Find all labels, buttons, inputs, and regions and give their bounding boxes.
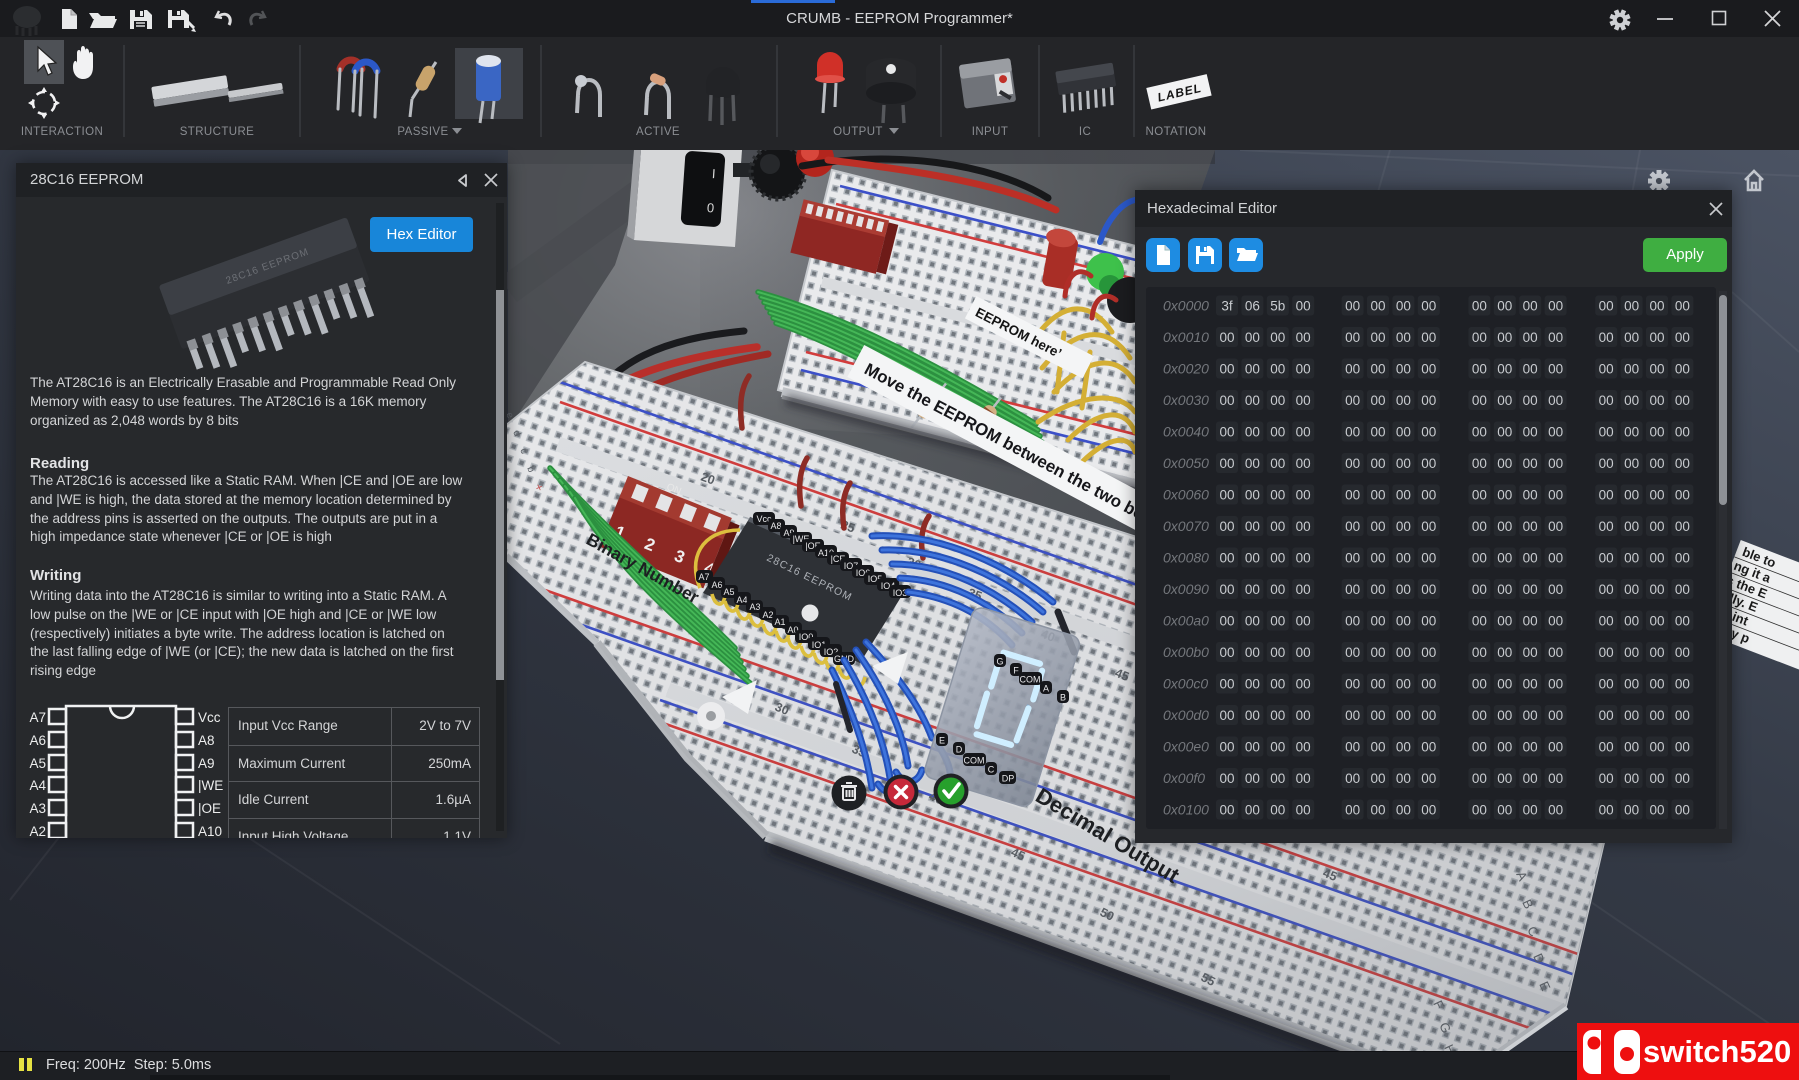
svg-text:00: 00 (1270, 613, 1285, 628)
svg-text:00: 00 (1270, 550, 1285, 565)
svg-text:00: 00 (1649, 456, 1664, 471)
svg-text:00: 00 (1345, 771, 1360, 786)
svg-text:00: 00 (1270, 424, 1285, 439)
svg-text:00: 00 (1345, 802, 1360, 817)
svg-text:00: 00 (1296, 739, 1311, 754)
svg-text:00: 00 (1396, 519, 1411, 534)
svg-text:00: 00 (1270, 519, 1285, 534)
svg-text:00: 00 (1649, 424, 1664, 439)
svg-text:00: 00 (1599, 424, 1614, 439)
svg-text:00: 00 (1675, 582, 1690, 597)
svg-text:00: 00 (1270, 676, 1285, 691)
svg-text:00: 00 (1370, 456, 1385, 471)
svg-text:00: 00 (1624, 613, 1639, 628)
svg-text:0x00c0: 0x00c0 (1163, 676, 1208, 692)
svg-text:00: 00 (1599, 582, 1614, 597)
svg-text:00: 00 (1548, 676, 1563, 691)
svg-text:00: 00 (1497, 393, 1512, 408)
svg-text:00: 00 (1599, 645, 1614, 660)
svg-text:00: 00 (1497, 550, 1512, 565)
svg-text:00: 00 (1421, 361, 1436, 376)
svg-text:00: 00 (1396, 676, 1411, 691)
svg-text:00: 00 (1421, 487, 1436, 502)
svg-text:00: 00 (1370, 613, 1385, 628)
svg-text:00: 00 (1649, 361, 1664, 376)
svg-text:00: 00 (1523, 424, 1538, 439)
svg-text:00: 00 (1396, 739, 1411, 754)
svg-text:00: 00 (1472, 424, 1487, 439)
svg-text:0x0080: 0x0080 (1163, 550, 1209, 566)
svg-text:INPUT: INPUT (972, 126, 1009, 138)
svg-text:00: 00 (1472, 361, 1487, 376)
svg-text:00: 00 (1345, 676, 1360, 691)
svg-text:00: 00 (1523, 676, 1538, 691)
svg-text:00: 00 (1345, 739, 1360, 754)
svg-text:00: 00 (1649, 613, 1664, 628)
svg-text:00: 00 (1245, 550, 1260, 565)
svg-text:0x0060: 0x0060 (1163, 487, 1209, 503)
svg-text:00: 00 (1675, 550, 1690, 565)
svg-text:0x0020: 0x0020 (1163, 361, 1209, 377)
svg-text:A7: A7 (29, 710, 46, 725)
svg-text:00: 00 (1296, 582, 1311, 597)
svg-text:0x00f0: 0x00f0 (1163, 770, 1205, 786)
svg-text:00: 00 (1497, 613, 1512, 628)
svg-text:00: 00 (1624, 550, 1639, 565)
svg-text:00: 00 (1421, 330, 1436, 345)
svg-text:00: 00 (1599, 361, 1614, 376)
svg-text:00: 00 (1270, 708, 1285, 723)
svg-text:00: 00 (1396, 330, 1411, 345)
svg-text:00: 00 (1624, 708, 1639, 723)
svg-text:00: 00 (1675, 771, 1690, 786)
svg-text:00: 00 (1649, 330, 1664, 345)
svg-text:00: 00 (1270, 645, 1285, 660)
svg-text:00: 00 (1370, 771, 1385, 786)
svg-text:0x00e0: 0x00e0 (1163, 739, 1209, 755)
svg-text:00: 00 (1270, 330, 1285, 345)
svg-text:06: 06 (1245, 298, 1260, 313)
svg-text:00: 00 (1548, 298, 1563, 313)
svg-text:00: 00 (1396, 613, 1411, 628)
svg-text:00: 00 (1624, 298, 1639, 313)
svg-text:A2: A2 (29, 824, 46, 838)
svg-text:00: 00 (1296, 645, 1311, 660)
svg-text:00: 00 (1523, 613, 1538, 628)
svg-text:A3: A3 (749, 602, 760, 612)
svg-text:00: 00 (1497, 739, 1512, 754)
svg-text:00: 00 (1599, 487, 1614, 502)
svg-text:00: 00 (1396, 550, 1411, 565)
svg-text:00: 00 (1296, 771, 1311, 786)
svg-text:00: 00 (1245, 456, 1260, 471)
svg-text:NOTATION: NOTATION (1146, 126, 1207, 138)
svg-text:00: 00 (1219, 519, 1234, 534)
svg-text:00: 00 (1523, 519, 1538, 534)
svg-text:IC: IC (1079, 126, 1091, 138)
svg-text:00: 00 (1523, 739, 1538, 754)
svg-text:COM: COM (964, 756, 985, 766)
svg-text:00: 00 (1396, 456, 1411, 471)
svg-text:00: 00 (1345, 393, 1360, 408)
svg-text:A8: A8 (198, 733, 215, 748)
svg-text:A6: A6 (29, 733, 46, 748)
svg-text:00: 00 (1599, 708, 1614, 723)
svg-text:00: 00 (1245, 487, 1260, 502)
svg-text:00: 00 (1345, 708, 1360, 723)
svg-text:F: F (1013, 666, 1019, 676)
svg-text:00: 00 (1245, 361, 1260, 376)
svg-text:00: 00 (1396, 771, 1411, 786)
svg-text:00: 00 (1219, 613, 1234, 628)
svg-text:00: 00 (1548, 424, 1563, 439)
svg-text:00: 00 (1599, 519, 1614, 534)
svg-text:00: 00 (1270, 456, 1285, 471)
svg-text:00: 00 (1396, 424, 1411, 439)
svg-text:00: 00 (1624, 739, 1639, 754)
svg-text:00: 00 (1497, 708, 1512, 723)
svg-text:00: 00 (1599, 393, 1614, 408)
svg-text:A2: A2 (762, 610, 773, 620)
svg-text:00: 00 (1675, 739, 1690, 754)
svg-text:|WE: |WE (198, 778, 223, 793)
svg-text:00: 00 (1599, 802, 1614, 817)
svg-text:00: 00 (1649, 393, 1664, 408)
svg-text:00: 00 (1472, 613, 1487, 628)
svg-text:00: 00 (1472, 550, 1487, 565)
svg-text:0x0030: 0x0030 (1163, 392, 1209, 408)
svg-text:3f: 3f (1221, 298, 1233, 313)
svg-text:00: 00 (1296, 330, 1311, 345)
svg-text:00: 00 (1345, 361, 1360, 376)
svg-text:00: 00 (1396, 361, 1411, 376)
svg-text:00: 00 (1497, 771, 1512, 786)
svg-text:00: 00 (1675, 330, 1690, 345)
svg-text:00: 00 (1624, 519, 1639, 534)
svg-text:00: 00 (1624, 424, 1639, 439)
svg-text:00: 00 (1497, 519, 1512, 534)
svg-text:A9: A9 (198, 756, 215, 771)
svg-text:00: 00 (1296, 613, 1311, 628)
svg-text:00: 00 (1219, 802, 1234, 817)
svg-text:00: 00 (1675, 456, 1690, 471)
svg-text:00: 00 (1624, 393, 1639, 408)
svg-text:00: 00 (1370, 739, 1385, 754)
svg-text:00: 00 (1599, 739, 1614, 754)
svg-text:00: 00 (1370, 645, 1385, 660)
svg-text:00: 00 (1370, 487, 1385, 502)
svg-text:0x00d0: 0x00d0 (1163, 707, 1209, 723)
svg-text:00: 00 (1599, 298, 1614, 313)
svg-text:A6: A6 (711, 580, 722, 590)
svg-text:00: 00 (1396, 393, 1411, 408)
svg-text:00: 00 (1624, 802, 1639, 817)
svg-text:00: 00 (1345, 424, 1360, 439)
svg-text:00: 00 (1472, 298, 1487, 313)
svg-text:ACTIVE: ACTIVE (636, 126, 680, 138)
svg-text:00: 00 (1421, 550, 1436, 565)
svg-text:00: 00 (1421, 393, 1436, 408)
svg-text:00: 00 (1421, 645, 1436, 660)
svg-text:00: 00 (1675, 298, 1690, 313)
svg-text:00: 00 (1421, 739, 1436, 754)
svg-text:00: 00 (1370, 424, 1385, 439)
svg-text:5b: 5b (1270, 298, 1285, 313)
svg-text:00: 00 (1421, 802, 1436, 817)
svg-text:00: 00 (1245, 771, 1260, 786)
svg-text:00: 00 (1548, 550, 1563, 565)
svg-text:00: 00 (1472, 330, 1487, 345)
svg-text:00: 00 (1345, 645, 1360, 660)
svg-text:A5: A5 (723, 587, 734, 597)
svg-text:00: 00 (1245, 393, 1260, 408)
svg-text:00: 00 (1523, 298, 1538, 313)
svg-text:00: 00 (1245, 676, 1260, 691)
svg-text:00: 00 (1548, 613, 1563, 628)
svg-text:00: 00 (1370, 361, 1385, 376)
svg-text:00: 00 (1370, 519, 1385, 534)
svg-text:00: 00 (1497, 582, 1512, 597)
svg-text:00: 00 (1296, 487, 1311, 502)
svg-text:00: 00 (1599, 771, 1614, 786)
svg-text:00: 00 (1472, 393, 1487, 408)
svg-text:00: 00 (1245, 739, 1260, 754)
svg-text:00: 00 (1548, 582, 1563, 597)
svg-text:00: 00 (1649, 582, 1664, 597)
svg-text:00: 00 (1649, 708, 1664, 723)
svg-text:00: 00 (1245, 330, 1260, 345)
svg-text:A1: A1 (774, 617, 785, 627)
svg-text:00: 00 (1548, 456, 1563, 471)
svg-text:00: 00 (1219, 676, 1234, 691)
svg-text:0: 0 (706, 200, 714, 215)
svg-text:00: 00 (1270, 739, 1285, 754)
svg-text:00: 00 (1675, 613, 1690, 628)
svg-text:A7: A7 (698, 572, 709, 582)
svg-text:A10: A10 (198, 824, 222, 838)
svg-text:00: 00 (1548, 739, 1563, 754)
svg-text:00: 00 (1472, 802, 1487, 817)
svg-text:00: 00 (1370, 676, 1385, 691)
svg-text:0x0090: 0x0090 (1163, 581, 1209, 597)
svg-text:0x0010: 0x0010 (1163, 329, 1209, 345)
svg-text:00: 00 (1675, 424, 1690, 439)
svg-text:0x00b0: 0x00b0 (1163, 644, 1209, 660)
svg-text:00: 00 (1421, 424, 1436, 439)
svg-text:00: 00 (1421, 613, 1436, 628)
svg-text:00: 00 (1245, 582, 1260, 597)
svg-text:00: 00 (1245, 424, 1260, 439)
svg-text:00: 00 (1296, 298, 1311, 313)
svg-text:G: G (996, 657, 1003, 667)
svg-text:00: 00 (1370, 550, 1385, 565)
svg-text:00: 00 (1624, 456, 1639, 471)
svg-text:00: 00 (1345, 456, 1360, 471)
svg-text:00: 00 (1370, 298, 1385, 313)
svg-text:00: 00 (1675, 487, 1690, 502)
svg-text:00: 00 (1472, 582, 1487, 597)
svg-text:00: 00 (1219, 487, 1234, 502)
svg-text:00: 00 (1497, 676, 1512, 691)
svg-text:00: 00 (1345, 550, 1360, 565)
svg-text:00: 00 (1421, 771, 1436, 786)
svg-text:00: 00 (1548, 487, 1563, 502)
svg-text:00: 00 (1548, 802, 1563, 817)
svg-text:00: 00 (1548, 361, 1563, 376)
svg-text:00: 00 (1296, 361, 1311, 376)
svg-text:00: 00 (1472, 708, 1487, 723)
svg-text:00: 00 (1245, 708, 1260, 723)
svg-text:00: 00 (1245, 645, 1260, 660)
svg-text:00: 00 (1497, 487, 1512, 502)
svg-text:00: 00 (1270, 582, 1285, 597)
svg-text:0x0100: 0x0100 (1163, 802, 1209, 818)
svg-text:00: 00 (1472, 771, 1487, 786)
svg-text:00: 00 (1624, 582, 1639, 597)
svg-text:A: A (1043, 684, 1049, 694)
svg-text:OUTPUT: OUTPUT (833, 126, 883, 138)
svg-text:00: 00 (1649, 519, 1664, 534)
svg-text:00: 00 (1370, 330, 1385, 345)
svg-text:00: 00 (1675, 708, 1690, 723)
svg-text:00: 00 (1219, 582, 1234, 597)
svg-text:STRUCTURE: STRUCTURE (180, 126, 255, 138)
svg-text:00: 00 (1219, 550, 1234, 565)
svg-text:00: 00 (1296, 456, 1311, 471)
svg-text:00: 00 (1296, 676, 1311, 691)
svg-text:00: 00 (1472, 645, 1487, 660)
svg-text:A4: A4 (29, 778, 46, 793)
svg-text:B: B (1060, 693, 1066, 703)
svg-text:00: 00 (1649, 676, 1664, 691)
svg-text:00: 00 (1219, 739, 1234, 754)
svg-text:00: 00 (1523, 487, 1538, 502)
svg-text:00: 00 (1599, 613, 1614, 628)
svg-text:00: 00 (1599, 330, 1614, 345)
svg-text:00: 00 (1497, 330, 1512, 345)
svg-text:00: 00 (1270, 771, 1285, 786)
svg-text:00: 00 (1624, 645, 1639, 660)
svg-text:00: 00 (1296, 708, 1311, 723)
svg-text:00: 00 (1396, 645, 1411, 660)
svg-text:00: 00 (1472, 676, 1487, 691)
svg-text:00: 00 (1421, 298, 1436, 313)
svg-text:E: E (939, 736, 945, 746)
svg-text:00: 00 (1497, 361, 1512, 376)
svg-text:Vcc: Vcc (198, 710, 221, 725)
svg-text:00: 00 (1296, 519, 1311, 534)
svg-text:00: 00 (1270, 802, 1285, 817)
svg-text:COM: COM (1020, 675, 1041, 685)
svg-text:00: 00 (1370, 708, 1385, 723)
svg-text:0x0000: 0x0000 (1163, 298, 1209, 314)
svg-text:00: 00 (1497, 645, 1512, 660)
svg-text:00: 00 (1396, 802, 1411, 817)
svg-text:00: 00 (1675, 645, 1690, 660)
svg-text:00: 00 (1649, 739, 1664, 754)
svg-text:00: 00 (1624, 771, 1639, 786)
svg-text:00: 00 (1270, 393, 1285, 408)
svg-text:00: 00 (1396, 487, 1411, 502)
svg-text:00: 00 (1245, 802, 1260, 817)
svg-text:00: 00 (1421, 708, 1436, 723)
svg-text:DP: DP (1002, 774, 1015, 784)
svg-text:A4: A4 (736, 595, 747, 605)
svg-text:00: 00 (1599, 550, 1614, 565)
svg-text:00: 00 (1421, 519, 1436, 534)
svg-text:00: 00 (1245, 519, 1260, 534)
svg-text:0x0050: 0x0050 (1163, 455, 1209, 471)
svg-text:00: 00 (1472, 519, 1487, 534)
svg-text:PASSIVE: PASSIVE (397, 126, 448, 138)
svg-text:00: 00 (1675, 676, 1690, 691)
svg-text:00: 00 (1548, 771, 1563, 786)
svg-text:00: 00 (1548, 330, 1563, 345)
svg-text:00: 00 (1649, 802, 1664, 817)
svg-text:00: 00 (1497, 456, 1512, 471)
svg-text:A5: A5 (29, 756, 46, 771)
svg-text:00: 00 (1599, 456, 1614, 471)
svg-text:00: 00 (1548, 519, 1563, 534)
svg-text:C: C (988, 765, 995, 775)
svg-text:00: 00 (1649, 550, 1664, 565)
svg-text:0x00a0: 0x00a0 (1163, 613, 1209, 629)
svg-text:00: 00 (1548, 393, 1563, 408)
svg-text:00: 00 (1219, 456, 1234, 471)
svg-text:00: 00 (1345, 487, 1360, 502)
svg-text:00: 00 (1421, 582, 1436, 597)
svg-text:00: 00 (1219, 708, 1234, 723)
svg-text:00: 00 (1548, 708, 1563, 723)
svg-text:00: 00 (1649, 771, 1664, 786)
svg-text:00: 00 (1219, 361, 1234, 376)
svg-text:00: 00 (1370, 393, 1385, 408)
svg-text:00: 00 (1296, 424, 1311, 439)
svg-text:A3: A3 (29, 801, 46, 816)
svg-text:0x0070: 0x0070 (1163, 518, 1209, 534)
svg-text:|OE: |OE (198, 801, 221, 816)
svg-text:00: 00 (1345, 613, 1360, 628)
svg-text:00: 00 (1345, 582, 1360, 597)
svg-text:00: 00 (1421, 456, 1436, 471)
svg-text:00: 00 (1345, 298, 1360, 313)
svg-text:00: 00 (1345, 519, 1360, 534)
svg-text:00: 00 (1599, 676, 1614, 691)
svg-text:00: 00 (1345, 330, 1360, 345)
svg-text:00: 00 (1370, 582, 1385, 597)
svg-text:00: 00 (1624, 487, 1639, 502)
svg-text:00: 00 (1497, 298, 1512, 313)
svg-text:00: 00 (1523, 582, 1538, 597)
svg-text:00: 00 (1649, 298, 1664, 313)
svg-text:00: 00 (1270, 487, 1285, 502)
svg-text:INTERACTION: INTERACTION (21, 126, 103, 138)
svg-text:00: 00 (1497, 802, 1512, 817)
svg-text:00: 00 (1675, 393, 1690, 408)
svg-text:00: 00 (1370, 802, 1385, 817)
svg-text:00: 00 (1649, 645, 1664, 660)
svg-text:A8: A8 (770, 521, 781, 531)
svg-text:00: 00 (1624, 330, 1639, 345)
svg-text:00: 00 (1219, 424, 1234, 439)
svg-text:00: 00 (1472, 456, 1487, 471)
svg-text:00: 00 (1296, 393, 1311, 408)
svg-text:00: 00 (1523, 393, 1538, 408)
svg-text:00: 00 (1296, 802, 1311, 817)
svg-text:D: D (956, 745, 963, 755)
svg-text:00: 00 (1270, 361, 1285, 376)
svg-text:00: 00 (1497, 424, 1512, 439)
